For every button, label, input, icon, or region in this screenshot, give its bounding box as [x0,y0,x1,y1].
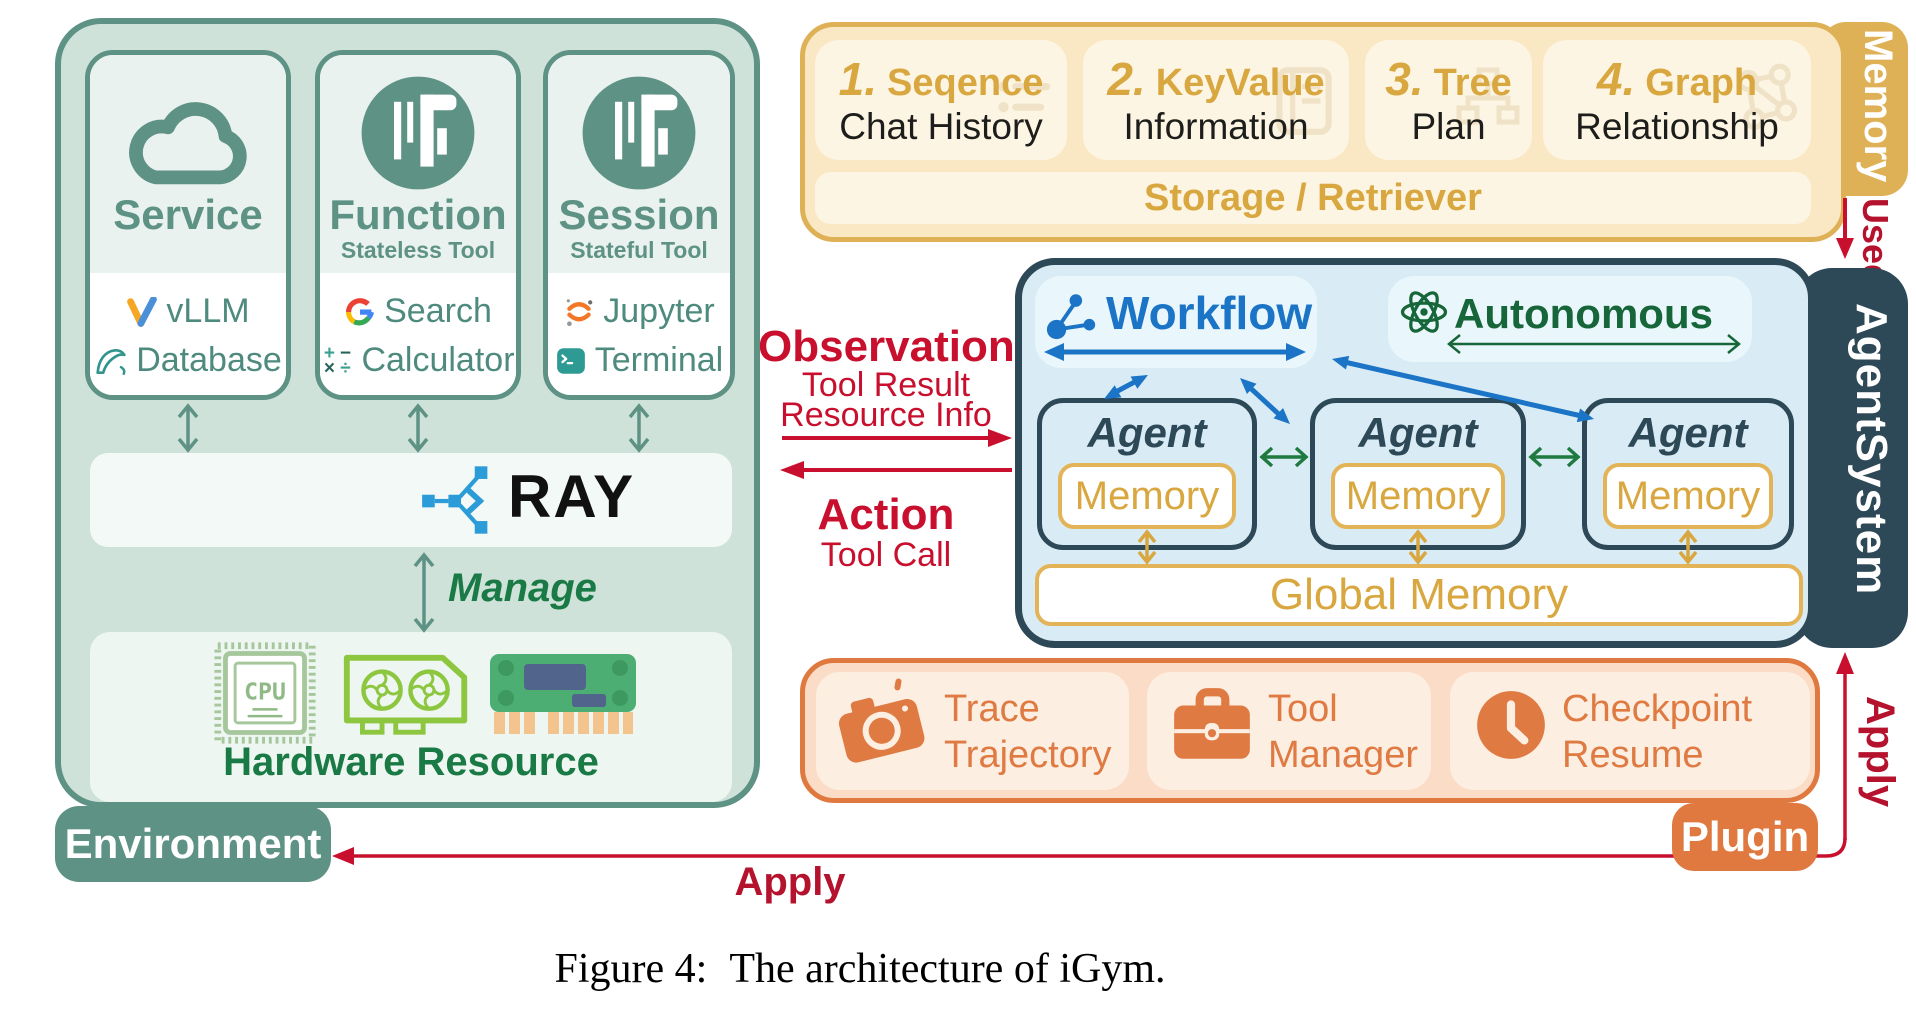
hardware-label: Hardware Resource [90,740,732,785]
cpu-icon: CPU [212,640,318,746]
agent-title: Agent [1315,409,1521,457]
agent-memory-label: Memory [1616,474,1760,519]
ram-icon [488,650,638,738]
memory-card-keyvalue: 2. KeyValue Information [1083,40,1349,160]
plugin-label-line1: Checkpoint [1562,686,1752,732]
observation-label: Observation [758,322,1014,372]
function-items: Search +−×÷ Calculator [320,277,516,395]
service-title: Service [113,193,262,237]
cloud-icon [113,83,263,193]
agent-title: Agent [1042,409,1252,457]
global-memory-bar: Global Memory [1035,564,1803,626]
list-item: Terminal [555,341,723,380]
global-memory-label: Global Memory [1270,570,1568,620]
plugin-label-line2: Manager [1268,732,1418,778]
memory-card-title: Tree [1434,62,1512,105]
agent-memory-box: Memory [1331,463,1505,529]
ray-logo-icon [420,460,500,540]
memory-card-number: 1. [839,52,877,106]
memory-card-number: 4. [1597,52,1635,106]
environment-tab: Environment [55,806,331,882]
google-g-icon [344,296,376,328]
memory-card-title: Graph [1645,62,1757,105]
briefcase-icon [1168,684,1256,766]
function-title: Function [329,193,506,237]
memory-card-number: 2. [1107,52,1145,106]
action-label: Action [758,490,1014,540]
workflow-icon [1044,288,1100,344]
list-item: Database [94,341,282,380]
caliper-tool-icon [579,73,699,193]
function-subtitle: Stateless Tool [341,237,495,263]
service-card-header: Service [90,55,286,273]
clock-icon [1472,686,1550,764]
list-item: vLLM [126,292,249,331]
mysql-dolphin-icon [94,346,128,376]
item-label: Database [136,341,282,380]
agentsystem-tab-label: AgentSystem [1846,303,1896,595]
item-label: Jupyter [603,292,715,331]
agent-box-2: Agent Memory [1310,398,1526,550]
svg-text:CPU: CPU [244,680,286,706]
plugin-label-line1: Tool [1268,686,1418,732]
caliper-tool-icon [358,73,478,193]
storage-retriever-bar: Storage / Retriever [815,172,1811,224]
ray-bar [90,453,732,547]
list-item: Jupyter [563,292,715,331]
agent-memory-box: Memory [1058,463,1236,529]
action-arrow [780,461,1012,479]
apply-right-label: Apply [1857,696,1902,807]
item-label: vLLM [166,292,249,331]
calculator-icon: +−×÷ [321,346,353,376]
memory-card-number: 3. [1385,52,1423,106]
session-items: Jupyter Terminal [548,277,730,395]
terminal-icon [555,345,587,377]
service-items: vLLM Database [90,277,286,395]
memory-tab-label: Memory [1855,29,1900,182]
session-subtitle: Stateful Tool [570,237,708,263]
figure-caption: Figure 4:The architecture of iGym. [420,945,1300,993]
agent-memory-box: Memory [1603,463,1773,529]
vllm-icon [126,297,158,327]
list-item: +−×÷ Calculator [321,341,514,380]
plugin-tab-label: Plugin [1681,813,1809,861]
caption-text: The architecture of iGym. [729,946,1165,992]
plugin-trace-label: Trace Trajectory [944,686,1112,778]
agent-memory-label: Memory [1075,474,1219,519]
item-label: Calculator [361,341,514,380]
memory-card-subtitle: Plan [1411,106,1485,148]
plugin-tool-label: Tool Manager [1268,686,1418,778]
gpu-icon [340,650,474,742]
atom-icon [1396,284,1452,340]
item-label: Search [384,292,492,331]
memory-card-subtitle: Information [1123,106,1308,148]
service-card: Service vLLM Database [85,50,291,400]
workflow-label: Workflow [1106,286,1312,340]
item-label: Terminal [595,341,723,380]
session-title: Session [558,193,719,237]
agent-title: Agent [1587,409,1789,457]
agent-box-3: Agent Memory [1582,398,1794,550]
observation-sub2: Resource Info [758,396,1014,434]
memory-card-sequence: 1. Seqence Chat History [815,40,1067,160]
memory-card-title: Seqence [887,62,1043,105]
storage-retriever-label: Storage / Retriever [1144,177,1482,220]
plugin-tab: Plugin [1672,803,1818,871]
memory-card-tree: 3. Tree Plan [1365,40,1532,160]
jupyter-icon [563,296,595,328]
agent-box-1: Agent Memory [1037,398,1257,550]
environment-tab-label: Environment [65,820,322,868]
memory-card-subtitle: Relationship [1575,106,1779,148]
function-card: Function Stateless Tool Search +−×÷ Calc… [315,50,521,400]
autonomous-label: Autonomous [1454,290,1713,338]
session-card-header: Session Stateful Tool [548,55,730,273]
manage-label: Manage [448,566,597,611]
plugin-label-line2: Resume [1562,732,1752,778]
plugin-label-line1: Trace [944,686,1112,732]
function-card-header: Function Stateless Tool [320,55,516,273]
plugin-checkpoint-label: Checkpoint Resume [1562,686,1752,778]
apply-bottom-label: Apply [710,860,870,905]
list-item: Search [344,292,492,331]
agent-memory-label: Memory [1346,474,1490,519]
plugin-label-line2: Trajectory [944,732,1112,778]
figure-canvas: Service vLLM Database [0,0,1916,1022]
session-card: Session Stateful Tool Jupyter [543,50,735,400]
memory-card-subtitle: Chat History [839,106,1043,148]
memory-card-title: KeyValue [1156,62,1325,105]
memory-card-graph: 4. Graph Relationship [1543,40,1811,160]
caption-prefix: Figure 4: [555,946,708,992]
action-sub: Tool Call [758,536,1014,574]
camera-icon [832,678,930,770]
ray-label: RAY [508,462,635,531]
